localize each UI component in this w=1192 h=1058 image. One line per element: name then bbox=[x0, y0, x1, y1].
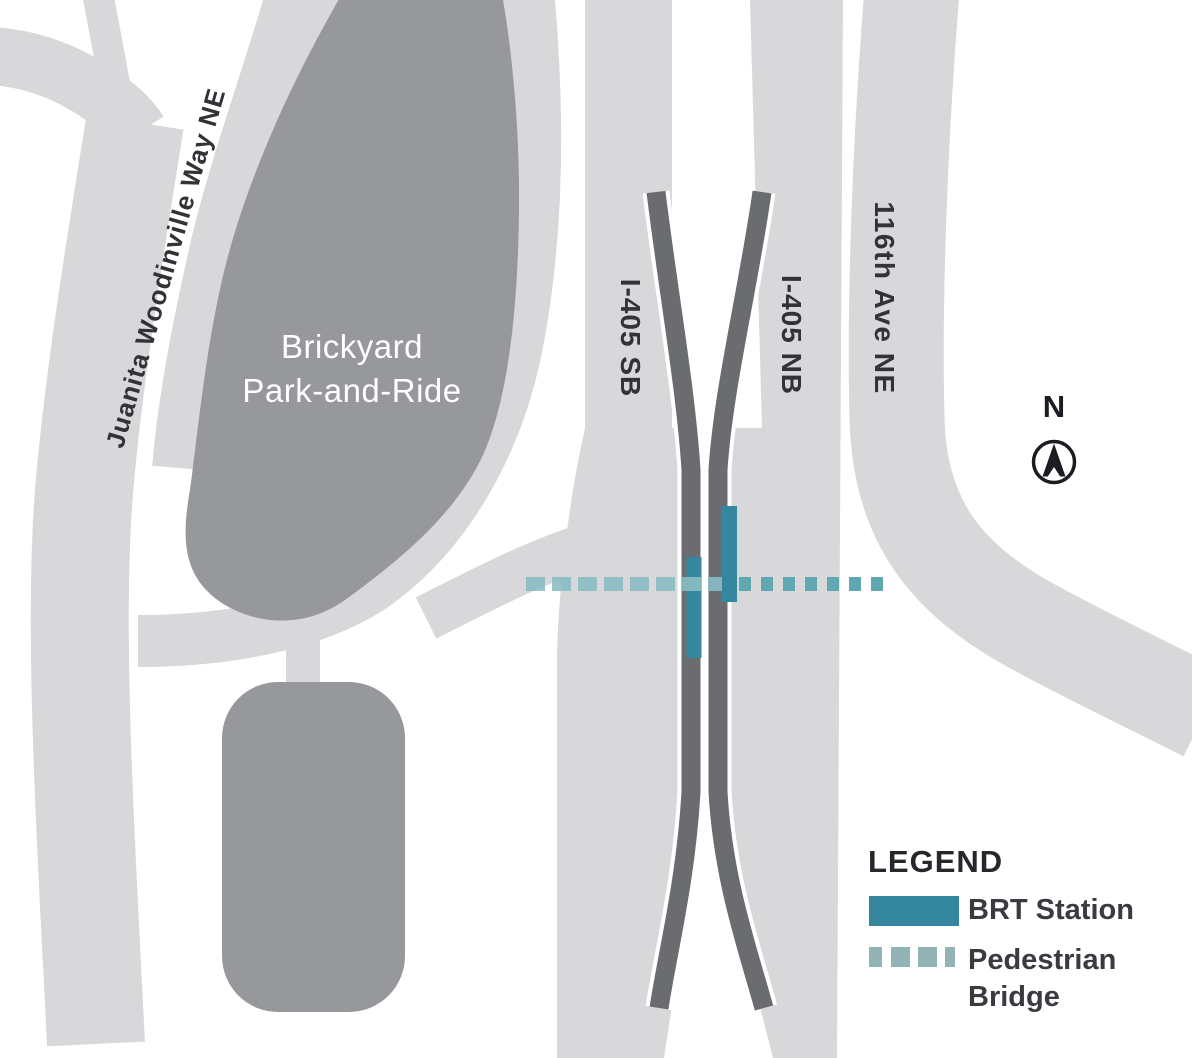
road-i405-nb-roadway bbox=[750, 0, 843, 1058]
legend-swatches bbox=[869, 896, 959, 967]
lot-label-line1: Brickyard bbox=[242, 325, 461, 369]
legend-ped-line2: Bridge bbox=[968, 979, 1116, 1016]
north-label: N bbox=[1043, 389, 1065, 425]
road-juanita-way bbox=[80, 122, 135, 1044]
road-116th-ave bbox=[896, 0, 1192, 714]
legend-ped-line1: Pedestrian bbox=[968, 942, 1116, 979]
road-label-i405-sb: I-405 SB bbox=[614, 279, 646, 398]
lot-label-brickyard-park-and-ride: Brickyard Park-and-Ride bbox=[242, 325, 461, 413]
legend-pedestrian-bridge-label: Pedestrian Bridge bbox=[968, 942, 1116, 1016]
station-area-map: Juanita Woodinville Way NE Brickyard Par… bbox=[0, 0, 1192, 1058]
legend-brt-swatch bbox=[869, 896, 959, 926]
north-arrow-icon bbox=[1034, 442, 1075, 483]
lot-south bbox=[222, 682, 405, 1012]
road-label-i405-nb: I-405 NB bbox=[775, 275, 807, 395]
legend-title: LEGEND bbox=[868, 844, 1003, 880]
road-i405-sb-roadway bbox=[557, 0, 672, 1058]
legend-brt-station-label: BRT Station bbox=[968, 894, 1134, 927]
lot-label-line2: Park-and-Ride bbox=[242, 369, 461, 413]
road-label-116th-ave-ne: 116th Ave NE bbox=[868, 201, 900, 394]
legend-ped-swatch bbox=[869, 947, 955, 967]
